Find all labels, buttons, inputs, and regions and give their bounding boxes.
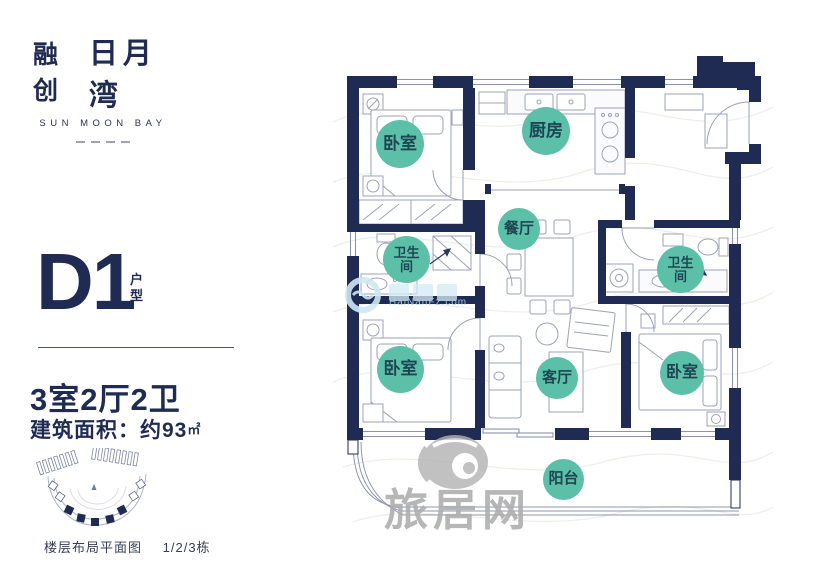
brand-cn: 融创 — [33, 35, 83, 107]
brand-logo: 融创 日月湾 SUN MOON BAY — [33, 30, 183, 151]
unit-code-block: D1 户型 — [36, 242, 134, 328]
spec-area-text: 建筑面积：约93 — [30, 419, 187, 442]
room-label-text: 卫生间 — [667, 256, 694, 283]
unit-code: D1 — [36, 237, 134, 326]
room-label-text: 卫生间 — [393, 246, 420, 273]
room-label-bedroom-bottom-left: 卧室 — [377, 346, 424, 393]
room-label-bathroom-right: 卫生间 — [657, 246, 704, 293]
brand-microtext — [33, 133, 173, 151]
divider-line — [38, 347, 234, 348]
room-label-text: 卧室 — [384, 360, 418, 379]
site-comb-buildings — [37, 448, 139, 475]
site-north-marker — [92, 484, 97, 490]
floorplan-page: 融创 日月湾 SUN MOON BAY D1 户型 3室2厅2卫 建筑面积：约9… — [0, 0, 830, 581]
room-label-text: 阳台 — [548, 471, 578, 488]
spec-area: 建筑面积：约93㎡ — [30, 414, 201, 444]
site-buildings: 1/2/3栋 — [163, 540, 211, 555]
brand-en: SUN MOON BAY — [33, 118, 173, 129]
site-highlighted-blocks — [64, 505, 128, 526]
room-label-balcony: 阳台 — [543, 459, 584, 500]
brand-logo-row: 融创 日月湾 — [33, 30, 183, 114]
spec-area-unit: ㎡ — [187, 422, 201, 437]
room-label-dining: 餐厅 — [498, 208, 540, 250]
room-label-text: 卧室 — [666, 364, 698, 382]
site-plan-diagram — [30, 448, 165, 536]
brand-name: 日月湾 — [89, 30, 183, 114]
site-caption-label: 楼层布局平面图 — [44, 540, 142, 555]
room-label-text: 厨房 — [529, 122, 563, 141]
watermark-portal-text: 旅居网 — [384, 474, 531, 538]
room-label-text: 客厅 — [542, 370, 572, 387]
room-label-bedroom-top-left: 卧室 — [376, 120, 424, 168]
room-label-kitchen: 厨房 — [522, 107, 570, 155]
room-label-text: 餐厅 — [504, 221, 534, 238]
room-label-bedroom-bottom-right: 卧室 — [660, 351, 704, 395]
site-unit-blocks — [48, 479, 145, 501]
unit-type-suffix: 户型 — [130, 272, 145, 303]
room-label-text: 卧室 — [383, 135, 417, 154]
room-label-bathroom-left: 卫生间 — [383, 236, 430, 283]
room-label-living: 客厅 — [536, 357, 578, 399]
watermark-url-text: HaiNanFz.com — [389, 297, 467, 308]
spec-room-layout: 3室2厅2卫 — [30, 374, 181, 419]
site-caption: 楼层布局平面图 1/2/3栋 — [44, 537, 211, 556]
